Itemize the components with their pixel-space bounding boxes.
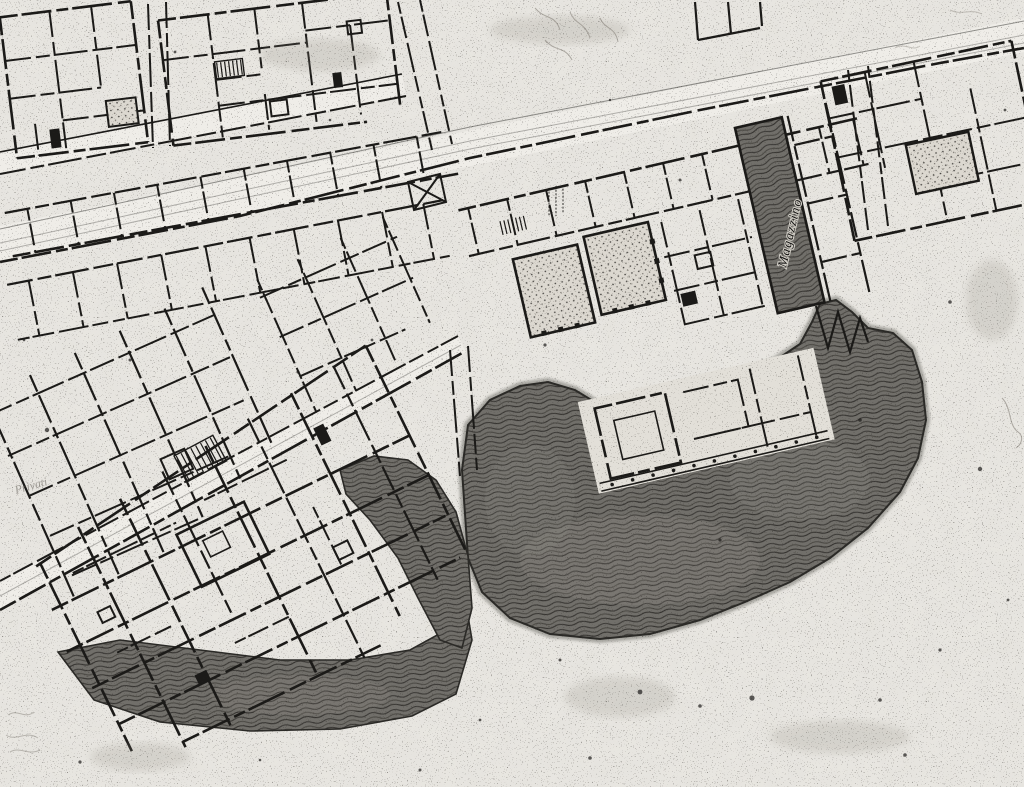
paper-speckle (0, 0, 1024, 787)
scanned-excavation-plan: Magazzino Privati (0, 0, 1024, 787)
plan-svg: Magazzino Privati (0, 0, 1024, 787)
